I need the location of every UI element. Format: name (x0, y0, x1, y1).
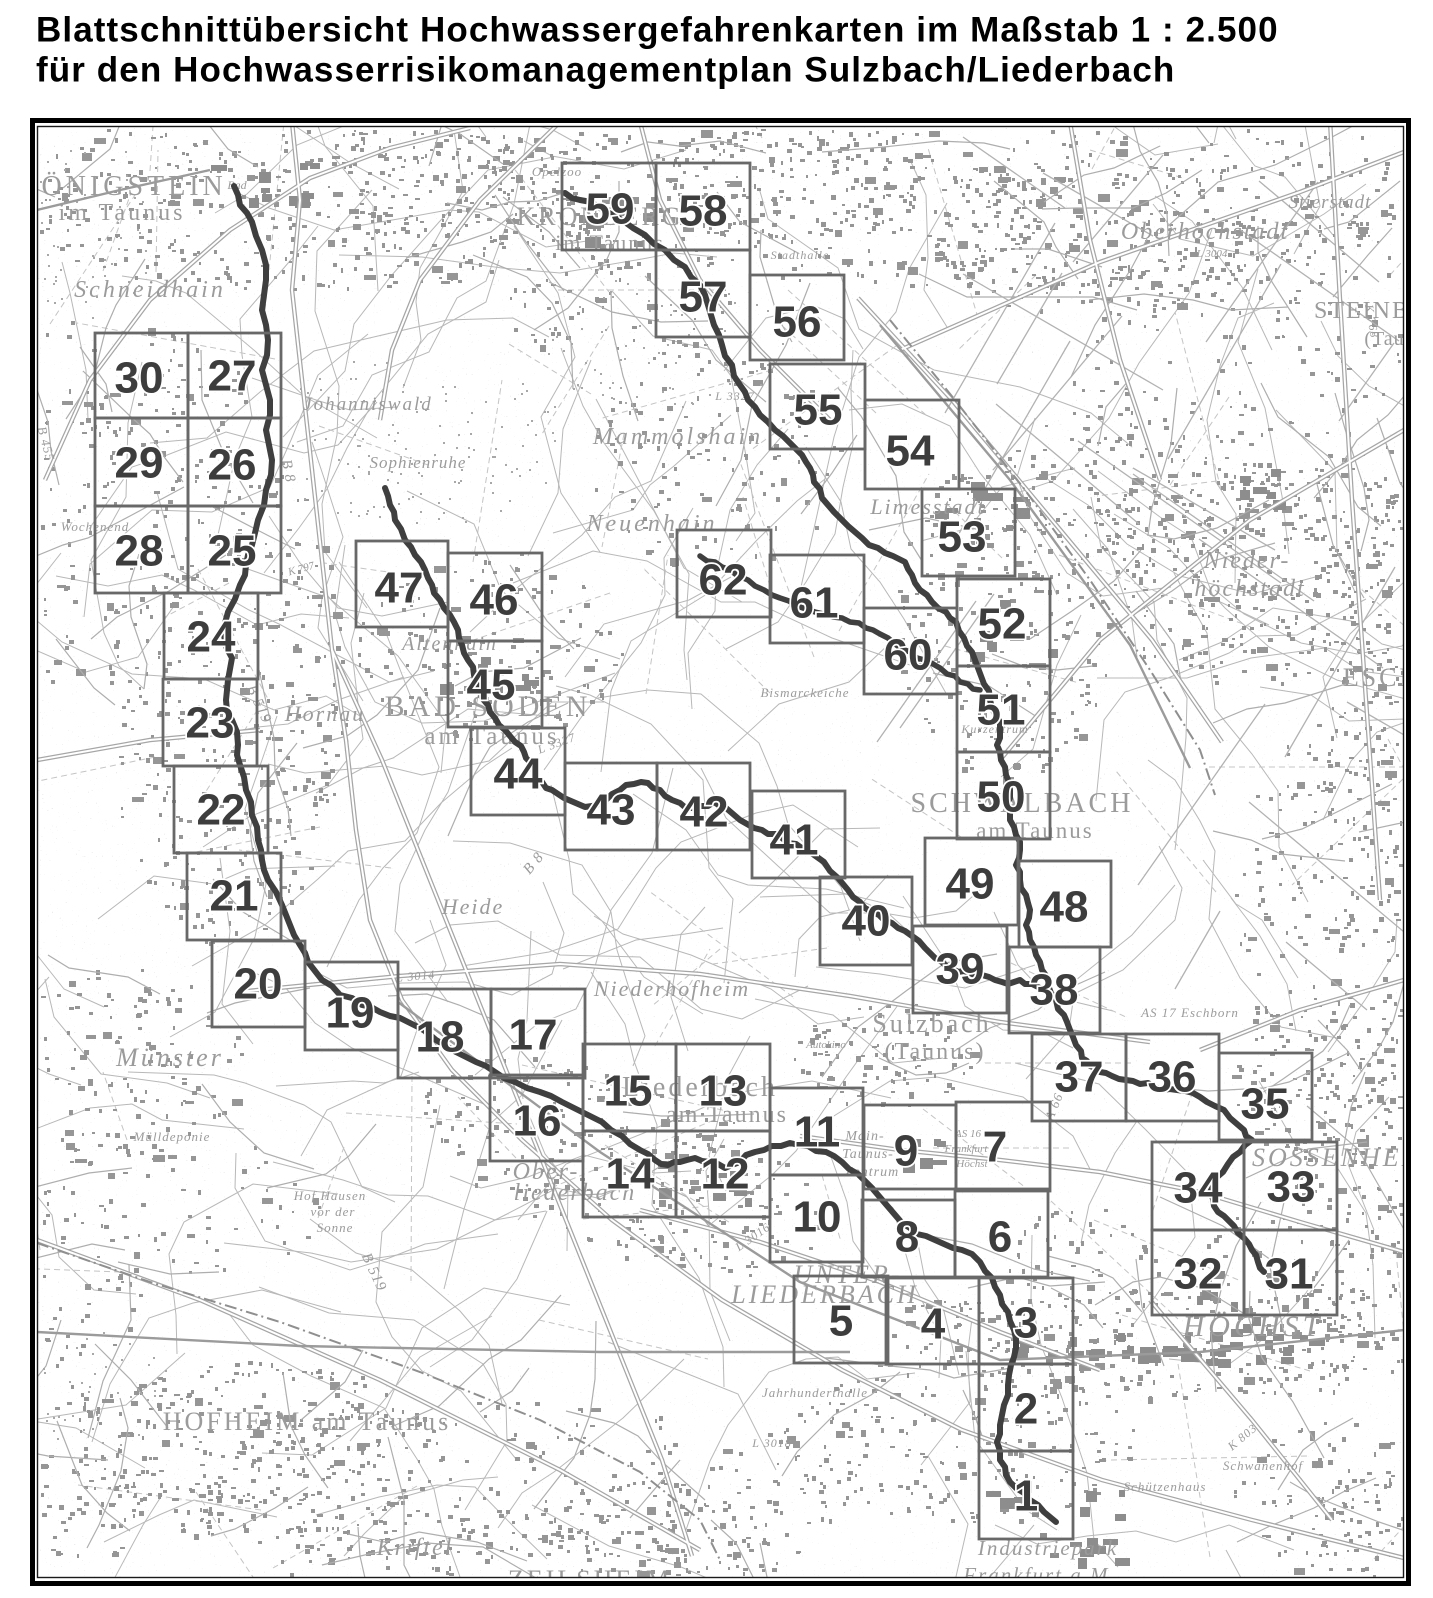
svg-text:44: 44 (494, 750, 543, 799)
svg-text:18: 18 (416, 1013, 465, 1062)
svg-text:48: 48 (1040, 883, 1089, 932)
svg-text:28: 28 (115, 527, 164, 576)
svg-text:54: 54 (886, 427, 935, 476)
svg-text:Neuenhain: Neuenhain (586, 511, 718, 537)
svg-text:16: 16 (513, 1097, 562, 1146)
svg-text:19: 19 (326, 989, 375, 1038)
svg-text:7: 7 (983, 1123, 1007, 1172)
svg-text:2: 2 (1014, 1385, 1038, 1434)
svg-text:45: 45 (467, 661, 516, 710)
svg-text:Münster: Münster (115, 1043, 224, 1072)
svg-text:61: 61 (790, 579, 839, 628)
svg-text:6: 6 (988, 1213, 1012, 1262)
svg-text:höchstadt: höchstadt (1194, 576, 1305, 602)
svg-text:AS 16: AS 16 (954, 1128, 981, 1140)
svg-text:31: 31 (1265, 1250, 1314, 1299)
svg-text:L 3004: L 3004 (1196, 248, 1228, 260)
svg-text:im Taunus: im Taunus (59, 200, 186, 226)
svg-text:Nieder-: Nieder- (1203, 548, 1291, 574)
svg-text:Stierstadt: Stierstadt (1289, 192, 1372, 213)
svg-text:35: 35 (1241, 1080, 1290, 1129)
svg-text:12: 12 (701, 1150, 750, 1199)
svg-text:Bismarckeiche: Bismarckeiche (760, 685, 849, 700)
svg-text:41: 41 (770, 816, 819, 865)
svg-text:Blattschnittübersicht Hochwass: Blattschnittübersicht Hochwassergefahren… (36, 11, 1279, 50)
svg-text:20: 20 (234, 960, 283, 1009)
svg-text:LIEDERBACH: LIEDERBACH (730, 1280, 918, 1309)
svg-text:58: 58 (679, 187, 728, 236)
svg-text:40: 40 (842, 897, 891, 946)
svg-text:STEINB: STEINB (1314, 298, 1410, 324)
svg-text:43: 43 (587, 786, 636, 835)
svg-text:1: 1 (1014, 1472, 1038, 1521)
svg-text:KÖNIGSTEIN: KÖNIGSTEIN (17, 171, 227, 202)
svg-text:37: 37 (1055, 1053, 1104, 1102)
svg-text:15: 15 (604, 1067, 653, 1116)
svg-text:Sophienruhe: Sophienruhe (370, 453, 467, 472)
svg-text:AS 17 Eschborn: AS 17 Eschborn (1140, 1005, 1239, 1020)
svg-text:42: 42 (680, 788, 729, 837)
svg-text:49: 49 (946, 860, 995, 909)
svg-text:27: 27 (208, 352, 257, 401)
svg-text:HOFHEIM am Taunus: HOFHEIM am Taunus (163, 1407, 451, 1436)
svg-text:14: 14 (606, 1150, 655, 1199)
svg-text:Stadthalle: Stadthalle (771, 248, 830, 262)
svg-text:24: 24 (187, 613, 236, 662)
svg-text:Sonne: Sonne (317, 1220, 354, 1235)
svg-text:34: 34 (1174, 1164, 1223, 1213)
svg-text:46: 46 (470, 576, 519, 625)
svg-text:62: 62 (699, 556, 748, 605)
svg-text:Opelzoo: Opelzoo (532, 164, 582, 179)
svg-text:55: 55 (794, 386, 843, 435)
svg-text:38: 38 (1030, 966, 1079, 1015)
svg-text:Taunus-: Taunus- (842, 1147, 894, 1162)
svg-text:5: 5 (829, 1297, 853, 1346)
svg-text:Niederhofheim: Niederhofheim (593, 976, 750, 1001)
svg-text:Kriftel: Kriftel (376, 1535, 454, 1561)
svg-text:8: 8 (895, 1213, 919, 1262)
svg-text:26: 26 (208, 441, 257, 490)
svg-text:Johanniswald: Johanniswald (303, 394, 433, 415)
svg-text:50: 50 (977, 773, 1026, 822)
svg-text:10: 10 (793, 1193, 842, 1242)
svg-text:für den Hochwasserrisikomanage: für den Hochwasserrisikomanagementplan S… (36, 51, 1175, 90)
svg-text:29: 29 (115, 439, 164, 488)
svg-text:Schützenhaus: Schützenhaus (1124, 1479, 1207, 1494)
svg-text:47: 47 (375, 564, 424, 613)
svg-text:3: 3 (1014, 1299, 1038, 1348)
svg-text:13: 13 (699, 1067, 748, 1116)
svg-text:Mammolshain: Mammolshain (592, 424, 763, 450)
svg-text:9: 9 (894, 1127, 918, 1176)
svg-text:60: 60 (884, 631, 933, 680)
svg-text:23: 23 (186, 699, 235, 748)
svg-text:51: 51 (977, 686, 1026, 735)
svg-text:17: 17 (509, 1011, 558, 1060)
svg-text:56: 56 (773, 298, 822, 347)
svg-text:Schneidhain: Schneidhain (74, 277, 226, 303)
svg-text:Heide: Heide (441, 894, 505, 919)
svg-text:52: 52 (978, 600, 1027, 649)
svg-text:Oberhöchstadt: Oberhöchstadt (1121, 219, 1289, 245)
svg-text:11: 11 (794, 1108, 841, 1157)
svg-text:21: 21 (210, 872, 259, 921)
svg-text:59: 59 (586, 185, 635, 234)
svg-text:vor der: vor der (311, 1204, 356, 1219)
svg-text:30: 30 (115, 354, 164, 403)
svg-text:Hof Hausen: Hof Hausen (293, 1188, 366, 1203)
svg-text:32: 32 (1174, 1250, 1223, 1299)
svg-text:53: 53 (938, 513, 987, 562)
svg-text:25: 25 (208, 527, 257, 576)
svg-text:57: 57 (679, 273, 728, 322)
svg-text:36: 36 (1148, 1053, 1197, 1102)
svg-text:Mülldeponie: Mülldeponie (133, 1129, 211, 1144)
svg-text:Schwanenhof: Schwanenhof (1223, 1458, 1305, 1473)
svg-text:39: 39 (936, 945, 985, 994)
svg-text:(Taunus): (Taunus) (885, 1039, 986, 1065)
svg-text:Autokino: Autokino (805, 1039, 846, 1051)
svg-text:Hornau: Hornau (284, 701, 365, 726)
svg-text:4: 4 (921, 1300, 946, 1349)
svg-text:Frankfurt: Frankfurt (944, 1143, 989, 1155)
svg-text:Jahrhunderthalle: Jahrhunderthalle (762, 1385, 868, 1400)
svg-text:22: 22 (197, 786, 246, 835)
svg-text:33: 33 (1267, 1163, 1316, 1212)
svg-text:L 3018: L 3018 (751, 1436, 791, 1450)
